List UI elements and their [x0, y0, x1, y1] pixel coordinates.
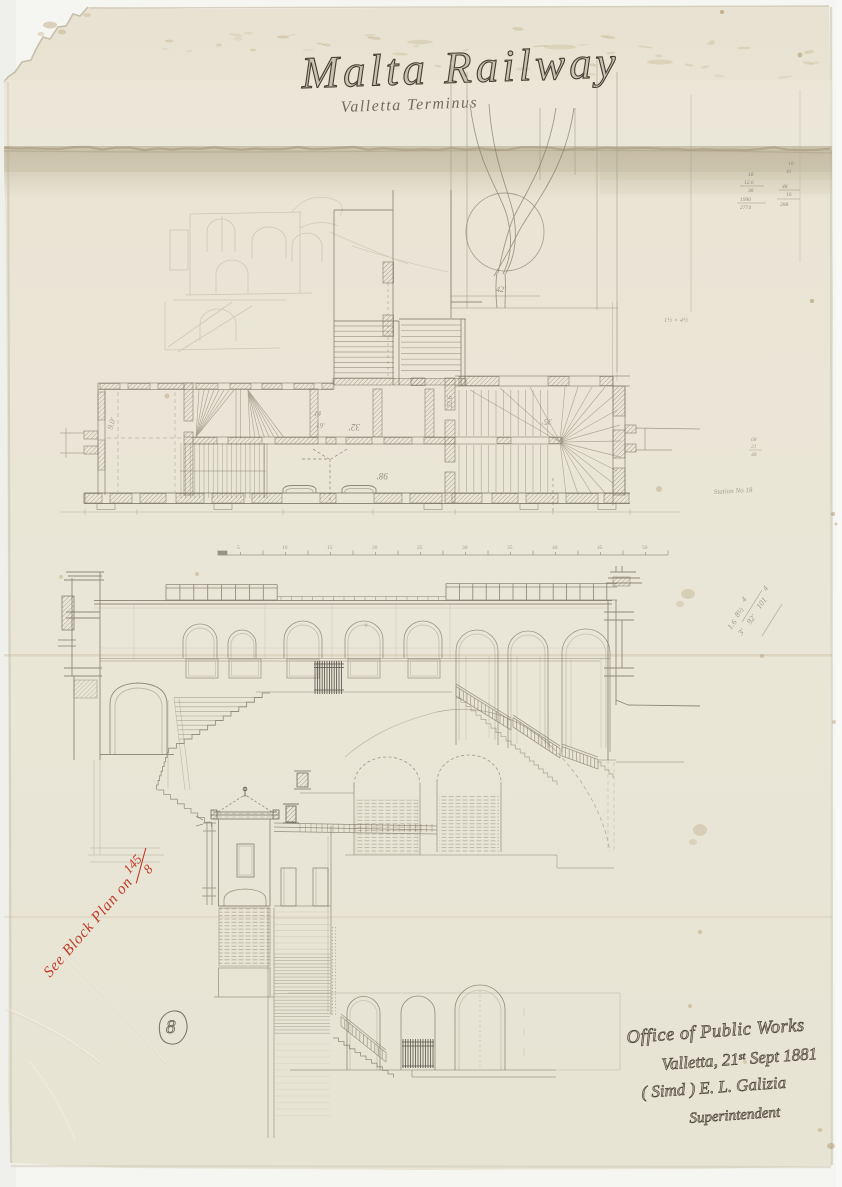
- svg-text:10: 10: [282, 545, 288, 551]
- svg-text:1996: 1996: [740, 197, 751, 203]
- svg-text:48: 48: [782, 183, 788, 190]
- svg-text:42': 42': [496, 285, 506, 294]
- svg-text:68: 68: [751, 437, 757, 443]
- svg-text:48: 48: [751, 451, 757, 458]
- svg-text:35: 35: [507, 545, 513, 551]
- svg-text:25: 25: [417, 545, 423, 551]
- svg-text:5: 5: [237, 545, 240, 551]
- svg-text:32': 32': [348, 422, 361, 432]
- svg-text:18: 18: [748, 172, 754, 178]
- svg-text:38: 38: [747, 188, 754, 194]
- svg-text:19': 19': [316, 422, 325, 430]
- svg-text:41: 41: [786, 168, 792, 175]
- svg-text:21: 21: [751, 444, 757, 450]
- svg-text:20: 20: [372, 545, 378, 551]
- svg-text:8: 8: [166, 1017, 176, 1038]
- svg-text:15: 15: [327, 545, 333, 551]
- svg-text:30: 30: [462, 545, 468, 551]
- svg-text:10: 10: [788, 161, 794, 167]
- svg-text:14: 14: [314, 410, 322, 418]
- svg-text:2774: 2774: [740, 204, 751, 211]
- svg-text:45: 45: [597, 545, 603, 551]
- svg-text:12.6: 12.6: [744, 180, 754, 186]
- svg-text:50: 50: [642, 545, 648, 551]
- svg-text:288: 288: [780, 202, 789, 208]
- svg-text:40: 40: [552, 545, 558, 551]
- svg-text:98': 98': [376, 471, 388, 481]
- svg-text:1½ × 4½: 1½ × 4½: [664, 317, 688, 324]
- svg-text:16: 16: [786, 192, 792, 198]
